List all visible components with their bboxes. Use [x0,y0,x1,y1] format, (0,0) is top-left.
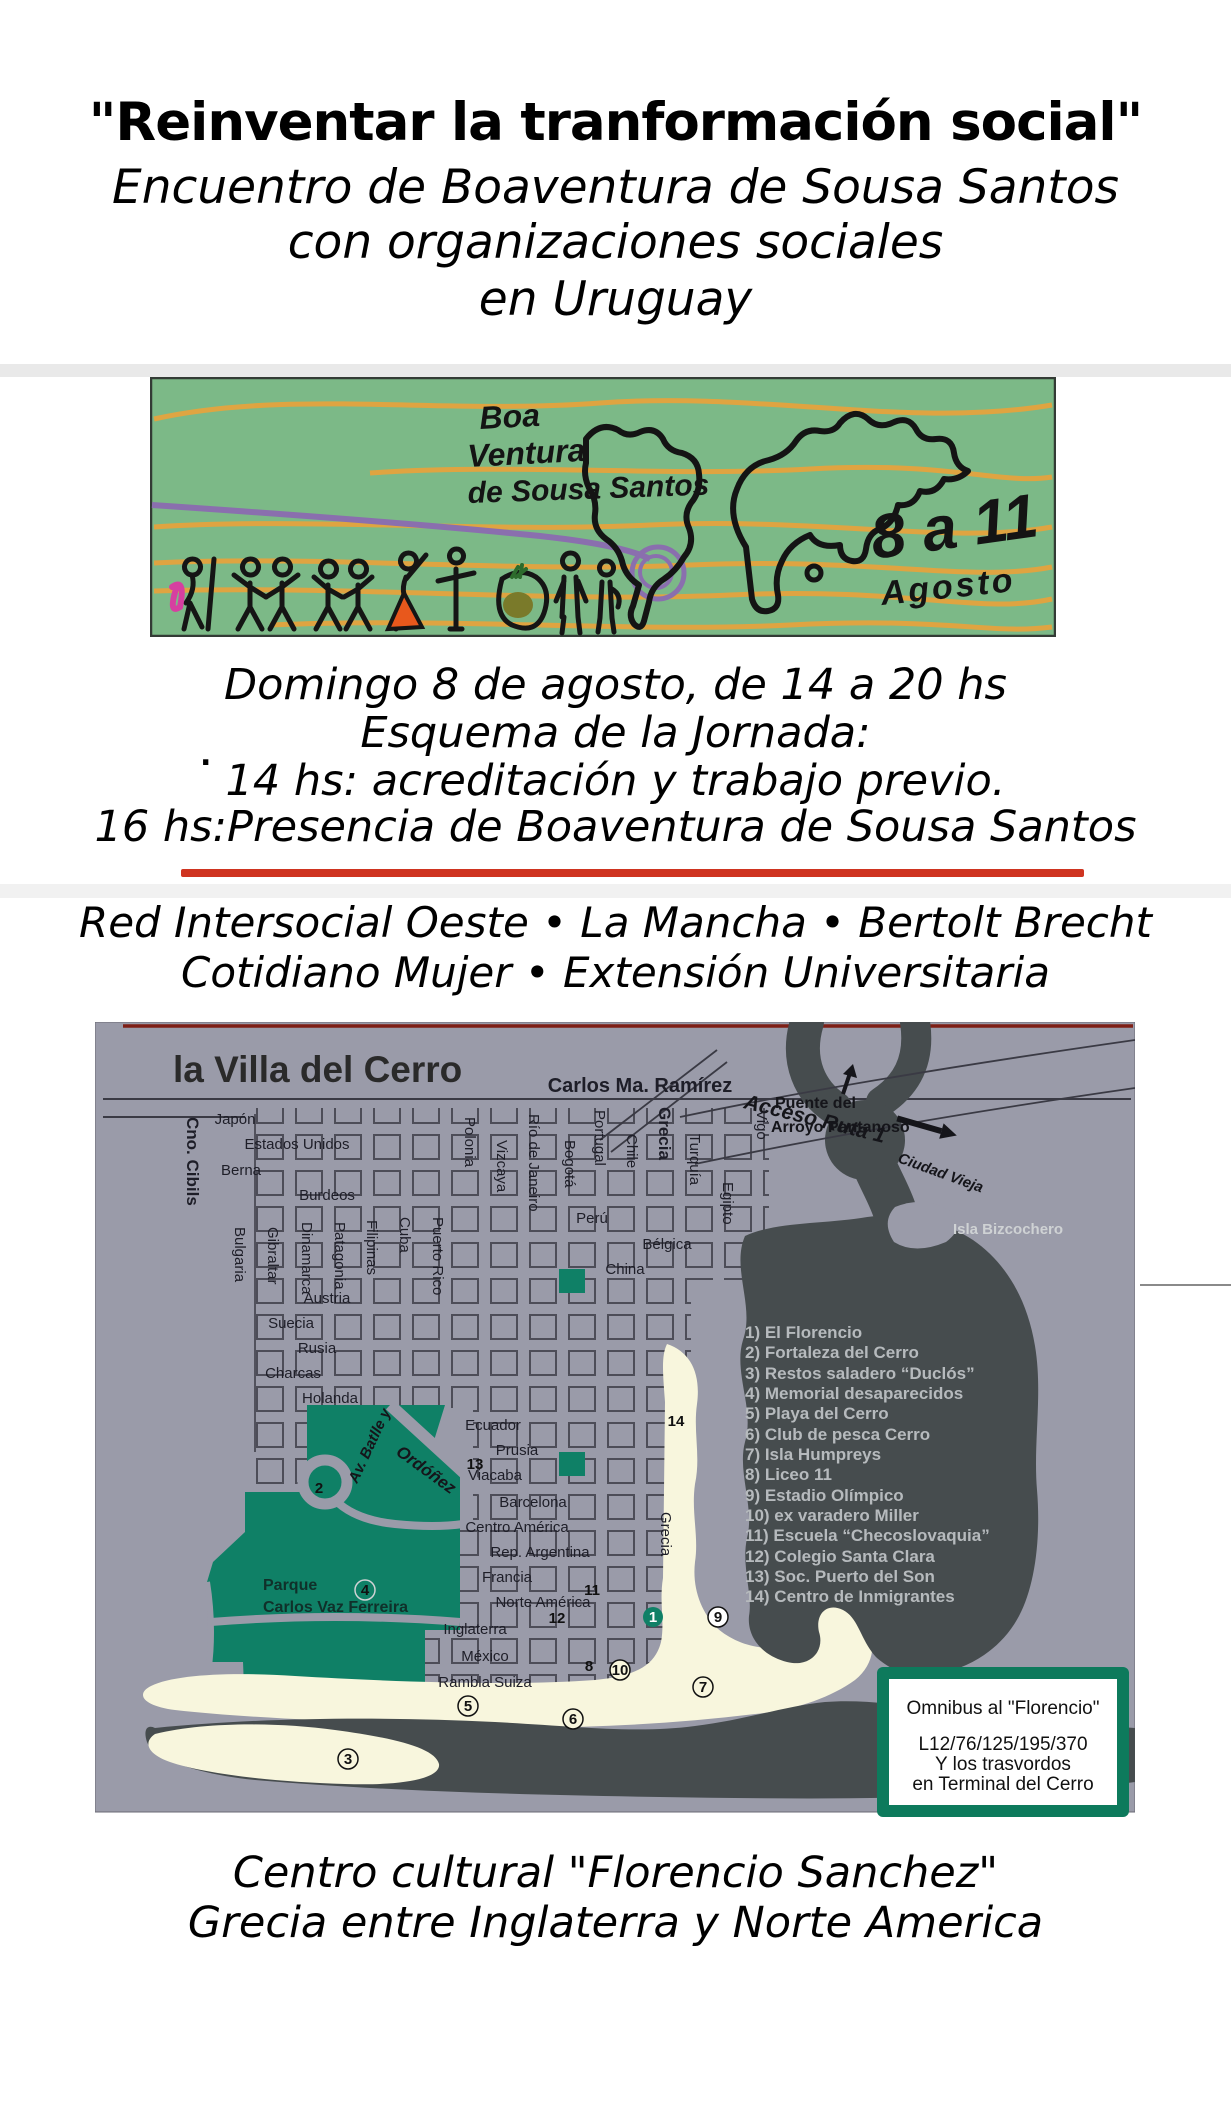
poster-page: "Reinventar la tranformación social" Enc… [0,0,1231,2125]
street-china: China [605,1261,645,1278]
marker-3: 3 [344,1751,352,1768]
street-patagonia: Patagonia [331,1222,348,1290]
street-portugal: Portugal [591,1110,608,1166]
street-vizcaya: Vizcaya [493,1140,510,1193]
banner-name-line2: Ventura [466,432,586,474]
legend-item-2: 2) Fortaleza del Cerro [745,1343,919,1362]
street-inglaterra: Inglaterra [443,1621,507,1638]
street-rambla-suiza: Rambla Suiza [438,1674,532,1691]
legend-item-10: 10) ex varadero Miller [745,1506,919,1525]
marker-10: 10 [612,1662,629,1679]
legend-item-6: 6) Club de pesca Cerro [745,1425,930,1444]
legend-item-3: 3) Restos saladero “Duclós” [745,1364,975,1383]
street-japon: Japón [215,1111,256,1128]
divider-band-middle [0,884,1231,898]
isla-bizcochero-label: Isla Bizcochero [953,1221,1063,1238]
street-peru: Perú [576,1210,608,1227]
street-norte-america: Norte América [495,1594,591,1611]
street-grecia: Grecia [655,1107,674,1160]
bus-line-3: Y los trasvordos [935,1754,1071,1775]
banner-name-line1: Boa [478,397,540,436]
street-cno-cibils: Cno. Cibils [183,1117,202,1206]
marker-9: 9 [714,1609,722,1626]
legend-item-13: 13) Soc. Puerto del Son [745,1567,935,1586]
street-centro-america: Centro América [465,1519,569,1536]
street-egipto: Egipto [719,1182,736,1225]
street-bogota: Bogotá [561,1140,578,1188]
street-turquia: Turquía [686,1134,703,1186]
marker-2: 2 [315,1480,323,1497]
schedule-line-1: Domingo 8 de agosto, de 14 a 20 hs [0,660,1231,710]
marker-6: 6 [569,1711,577,1728]
marker-14: 14 [668,1413,685,1430]
organizations-line-2: Cotidiano Mujer • Extensión Universitari… [0,948,1231,997]
street-francia: Francia [482,1569,533,1586]
street-puerto-rico: Puerto Rico [429,1217,446,1295]
street-berna: Berna [221,1162,262,1179]
street-cuba: Cuba [396,1217,413,1254]
street-grecia-south: Grecia [657,1512,674,1557]
legend-item-9: 9) Estadio Olímpico [745,1486,904,1505]
street-filipinas: Filipinas [363,1220,380,1275]
street-burdeos: Burdeos [299,1187,355,1204]
marker-5: 5 [464,1698,472,1715]
green-block-upper [559,1269,585,1293]
street-rep-argentina: Rep. Argentina [490,1544,590,1561]
street-estados-unidos: Estados Unidos [244,1136,349,1153]
puente-label-1: Puente del [775,1095,856,1112]
street-charcas: Charcas [265,1365,321,1382]
street-holanda: Holanda [302,1390,359,1407]
organizations-line-1: Red Intersocial Oeste • La Mancha • Bert… [0,898,1231,947]
red-underline-bar [181,869,1084,877]
street-vigo: Vigo [753,1110,770,1140]
street-dinamarca: Dinamarca [298,1222,315,1295]
schedule-line-2: Esquema de la Jornada: [0,708,1231,758]
street-belgica: Bélgica [642,1236,692,1253]
bus-line-4: en Terminal del Cerro [912,1774,1093,1795]
street-gibraltar: Gibraltar [264,1227,281,1285]
venue-line-2: Grecia entre Inglaterra y Norte America [0,1898,1231,1948]
bus-box-text: Omnibus al "Florencio" L12/76/125/195/37… [906,1698,1099,1795]
street-prusia: Prusia [496,1442,539,1459]
street-ecuador: Ecuador [465,1417,521,1434]
street-chile: Chile [623,1134,640,1168]
legend-item-14: 14) Centro de Inmigrantes [745,1587,955,1606]
villa-del-cerro-map: la Villa del Cerro [95,1022,1135,1822]
legend-item-8: 8) Liceo 11 [745,1465,832,1484]
bus-line-1: Omnibus al "Florencio" [906,1698,1099,1719]
street-suecia: Suecia [268,1315,315,1332]
marker-1: 1 [649,1609,657,1626]
marker-4: 4 [361,1582,370,1599]
bus-line-2: L12/76/125/195/370 [918,1734,1087,1755]
poster-title: "Reinventar la tranformación social" [0,92,1231,153]
legend-item-11: 11) Escuela “Checoslovaquia” [745,1526,990,1545]
street-rio-de-janeiro: Río de Janeiro [525,1114,542,1212]
parque-label-1: Parque [263,1577,317,1594]
schedule-line-4: 16 hs:Presencia de Boaventura de Sousa S… [0,802,1231,852]
divider-band-top [0,364,1231,377]
street-mexico: México [461,1648,509,1665]
legend-item-12: 12) Colegio Santa Clara [745,1547,935,1566]
marker-11: 11 [584,1582,600,1599]
poster-subtitle-2: con organizaciones sociales [0,215,1231,270]
venue-line-1: Centro cultural "Florencio Sanchez" [0,1848,1231,1898]
poster-subtitle-3: en Uruguay [0,272,1231,327]
street-polonia: Polonia [461,1117,478,1168]
legend-item-7: 7) Isla Humpreys [745,1445,881,1464]
legend-item-5: 5) Playa del Cerro [745,1404,889,1423]
bus-info-box: Omnibus al "Florencio" L12/76/125/195/37… [877,1667,1129,1817]
map-title: la Villa del Cerro [173,1049,462,1090]
street-bulgaria: Bulgaria [231,1227,248,1283]
street-carlos-ma-ramirez: Carlos Ma. Ramírez [548,1075,733,1097]
right-margin-line [1140,1284,1231,1286]
banner-illustration: Boa Ventura de Sousa Santos 8 a 11 Agost… [150,377,1056,637]
legend-item-4: 4) Memorial desaparecidos [745,1384,963,1403]
schedule-line-3: 14 hs: acreditación y trabajo previo. [0,756,1231,806]
street-barcelona: Barcelona [499,1494,567,1511]
marker-13: 13 [467,1456,484,1473]
parque-label-2: Carlos Vaz Ferreira [263,1599,408,1616]
marker-7: 7 [699,1679,707,1696]
poster-subtitle-1: Encuentro de Boaventura de Sousa Santos [0,160,1231,215]
marker-12: 12 [549,1610,566,1627]
puente-label-2: Arroyo Pantanoso [771,1119,910,1136]
street-rusia: Rusia [298,1340,337,1357]
legend-item-1: 1) El Florencio [745,1323,862,1342]
marker-8: 8 [585,1658,593,1675]
green-block-lower [559,1452,585,1476]
banner-dates: 8 a 11 Agosto [866,481,1042,613]
